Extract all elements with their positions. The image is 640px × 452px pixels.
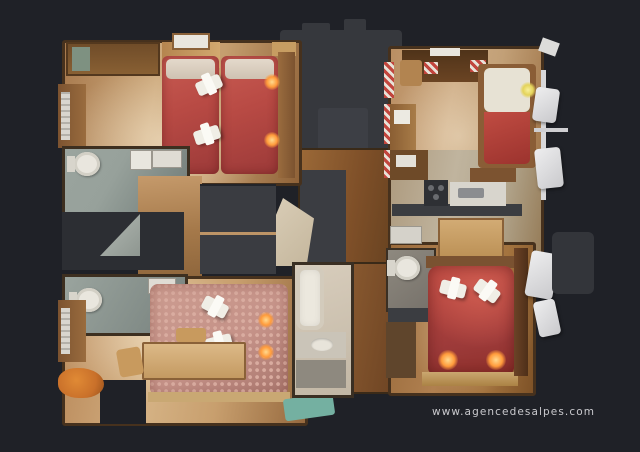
- bed-footboard: [422, 372, 518, 386]
- side-cabinet: [172, 33, 210, 50]
- orange-stool: [58, 368, 104, 398]
- dark-zone-wall-stub: [344, 19, 366, 33]
- washing-machine: [130, 150, 152, 170]
- dining-table: [438, 218, 504, 258]
- bed-frame: [278, 52, 295, 178]
- chair: [116, 346, 144, 378]
- paper-sheet: [430, 48, 460, 56]
- wardrobe-item: [72, 47, 90, 71]
- chair: [176, 328, 206, 342]
- striped-curtain: [384, 62, 394, 98]
- bedside-lamp-glow: [486, 350, 506, 370]
- washbasin-counter: [296, 332, 346, 358]
- kitchen-cabinet: [390, 150, 428, 180]
- washbasin-counter: [388, 308, 430, 322]
- bedside-lamp-glow: [258, 344, 274, 360]
- agency-watermark: www.agencedesalpes.com: [432, 406, 595, 418]
- washbasin: [152, 150, 182, 168]
- kitchen-unit: [390, 226, 422, 244]
- bedside-lamp-glow: [438, 350, 458, 370]
- balcony-chair: [532, 298, 561, 338]
- balcony-railing: [534, 128, 568, 132]
- side-table: [470, 168, 516, 182]
- closet: [386, 322, 416, 378]
- toilet: [74, 152, 100, 176]
- chair: [400, 60, 422, 86]
- bed-frame: [148, 392, 290, 402]
- dark-zone-wall-stub: [302, 23, 330, 33]
- radiator: [61, 308, 70, 354]
- balcony-chair: [532, 86, 560, 123]
- toilet: [394, 256, 420, 280]
- bathtub: [296, 266, 324, 330]
- closet-block: [200, 184, 276, 274]
- radiator: [61, 92, 70, 140]
- floor-cutout: [100, 380, 146, 424]
- table: [142, 342, 246, 380]
- bedside-lamp-glow: [264, 132, 280, 148]
- kitchen-sink: [450, 182, 506, 206]
- sofa-bed-red-blanket: [484, 112, 530, 164]
- wood-wall: [514, 248, 528, 376]
- floorplan-3d-top-view: www.agencedesalpes.com: [0, 0, 640, 452]
- wall-fragment: [552, 232, 594, 294]
- bedside-lamp-glow: [264, 74, 280, 90]
- desk: [390, 104, 416, 156]
- bedside-lamp-glow: [258, 312, 274, 328]
- balcony-chair: [534, 147, 564, 189]
- striped-cushion: [424, 62, 438, 74]
- stove: [424, 180, 448, 206]
- bathroom-floor-patch: [296, 360, 346, 388]
- lamp-glow: [520, 82, 536, 98]
